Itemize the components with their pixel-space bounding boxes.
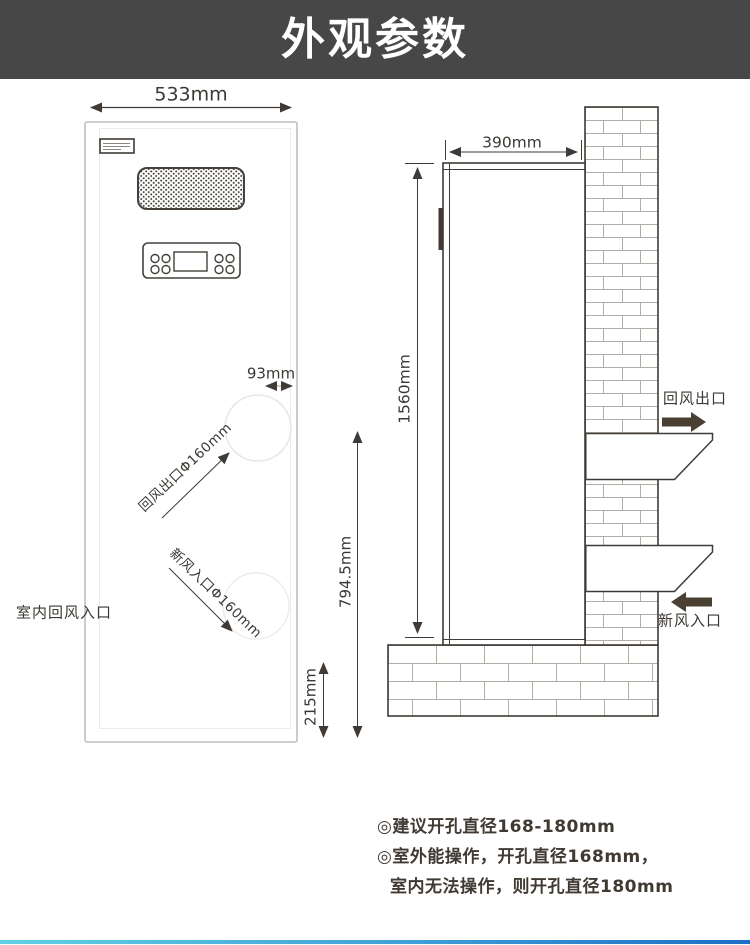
fresh-inlet-flow-arrow bbox=[671, 592, 712, 612]
hole-diameter-notes: ◎建议开孔直径168-180mm ◎室外能操作，开孔直径168mm， 室内无法操… bbox=[377, 812, 737, 902]
front-width-dim-label: 533mm bbox=[154, 86, 227, 105]
height-dim-label: 1560mm bbox=[397, 354, 413, 424]
control-panel bbox=[143, 243, 240, 278]
depth-dim-label: 390mm bbox=[482, 135, 542, 151]
page: 外观参数 bbox=[0, 0, 750, 945]
front-grille bbox=[138, 168, 244, 209]
fresh-inlet-duct bbox=[586, 546, 713, 592]
front-unit-body bbox=[85, 122, 297, 742]
brand-logo bbox=[100, 139, 134, 153]
indoor-return-inlet-label: 室内回风入口 bbox=[16, 606, 112, 621]
port-offset-dim-label: 93mm bbox=[247, 367, 295, 382]
panel-display bbox=[174, 252, 207, 271]
inlet-bottom-dim-label: 215mm bbox=[304, 668, 319, 726]
floor-platform bbox=[388, 645, 658, 716]
note-line-2: ◎室外能操作，开孔直径168mm， bbox=[377, 842, 737, 872]
note-line-3: 室内无法操作，则开孔直径180mm bbox=[377, 872, 737, 902]
return-outlet-duct bbox=[586, 434, 713, 480]
return-outlet-flow-arrow bbox=[662, 412, 706, 432]
outlet-height-dim-label: 794.5mm bbox=[339, 536, 354, 608]
side-unit-body bbox=[443, 163, 585, 645]
note-line-1: ◎建议开孔直径168-180mm bbox=[377, 812, 737, 842]
technical-drawing bbox=[0, 0, 750, 945]
side-unit-handle bbox=[439, 208, 444, 250]
fresh-inlet-label: 新风入口 bbox=[658, 614, 722, 629]
return-outlet-label: 回风出口 bbox=[663, 392, 727, 407]
footer-accent-bar bbox=[0, 940, 750, 944]
